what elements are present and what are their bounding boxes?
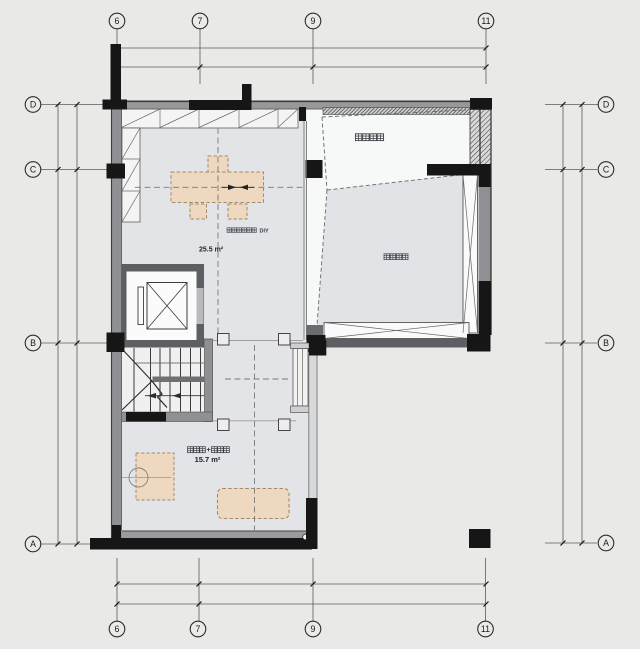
- svg-text:9: 9: [311, 16, 316, 26]
- svg-text:11: 11: [481, 16, 490, 26]
- svg-text:6: 6: [115, 16, 120, 26]
- svg-text:7: 7: [198, 16, 203, 26]
- svg-text:D: D: [603, 100, 609, 110]
- svg-text:9: 9: [311, 624, 316, 634]
- svg-text:11: 11: [481, 624, 490, 634]
- svg-text:15.7 m²: 15.7 m²: [195, 455, 221, 464]
- svg-text:A: A: [30, 539, 36, 549]
- svg-text:+: +: [207, 447, 211, 454]
- svg-text:DIY: DIY: [260, 229, 270, 235]
- svg-text:B: B: [603, 338, 609, 348]
- svg-text:B: B: [30, 338, 36, 348]
- svg-text:A: A: [603, 538, 609, 548]
- svg-text:25.5 m²: 25.5 m²: [199, 247, 224, 254]
- svg-text:D: D: [30, 100, 36, 110]
- svg-text:7: 7: [196, 624, 201, 634]
- svg-text:C: C: [30, 165, 37, 175]
- svg-text:C: C: [603, 165, 610, 175]
- svg-text:6: 6: [115, 624, 120, 634]
